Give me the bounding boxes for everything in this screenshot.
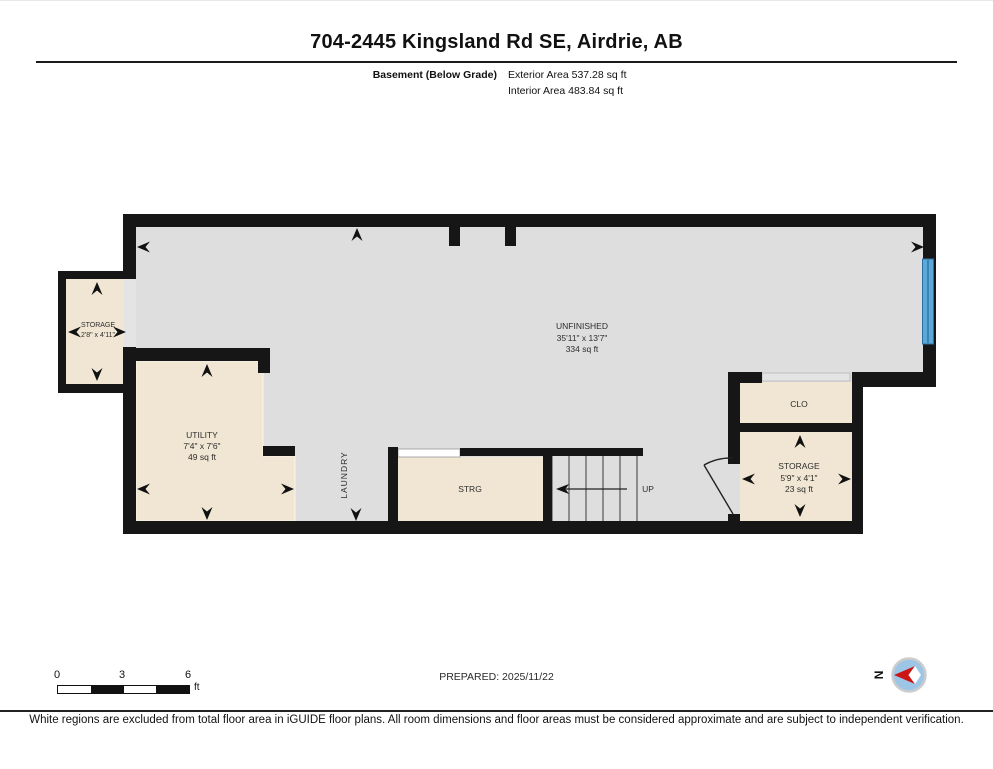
strg-name: STRG: [458, 484, 482, 494]
storage-right-dims: 5'9" x 4'1": [780, 473, 817, 483]
footer-divider: [0, 710, 993, 712]
floorplan-drawing: STORAGE 2'8" x 4'11" UTILITY 7'4" x 7'6"…: [0, 1, 993, 769]
compass-north-letter: N: [871, 671, 885, 680]
scale-unit: ft: [194, 682, 200, 693]
storage-right-area: 23 sq ft: [785, 484, 814, 494]
laundry-name: LAUNDRY: [339, 451, 349, 498]
storage-left-name: STORAGE: [81, 322, 115, 329]
utility-name: UTILITY: [186, 430, 218, 440]
floorplan-page: 704-2445 Kingsland Rd SE, Airdrie, AB Ba…: [0, 0, 993, 769]
clo-open-band: [762, 373, 850, 381]
unfinished-dims: 35'11" x 13'7": [557, 333, 608, 343]
disclaimer-text: White regions are excluded from total fl…: [0, 714, 993, 726]
stairs-up-label: UP: [642, 484, 654, 494]
scale-bar: [57, 685, 190, 694]
strg-open-band: [398, 449, 460, 457]
storage-left-dims: 2'8" x 4'11": [81, 332, 115, 339]
window-marker: [923, 259, 934, 344]
utility-area: 49 sq ft: [188, 452, 217, 462]
storage-right-name: STORAGE: [778, 461, 820, 471]
utility-dims: 7'4" x 7'6": [183, 441, 220, 451]
unfinished-area: 334 sq ft: [566, 344, 599, 354]
unfinished-name: UNFINISHED: [556, 321, 608, 331]
prepared-date: PREPARED: 2025/11/22: [0, 671, 993, 683]
clo-name: CLO: [790, 399, 808, 409]
storage-left-opening: [124, 279, 136, 347]
north-compass-icon: [887, 653, 931, 697]
